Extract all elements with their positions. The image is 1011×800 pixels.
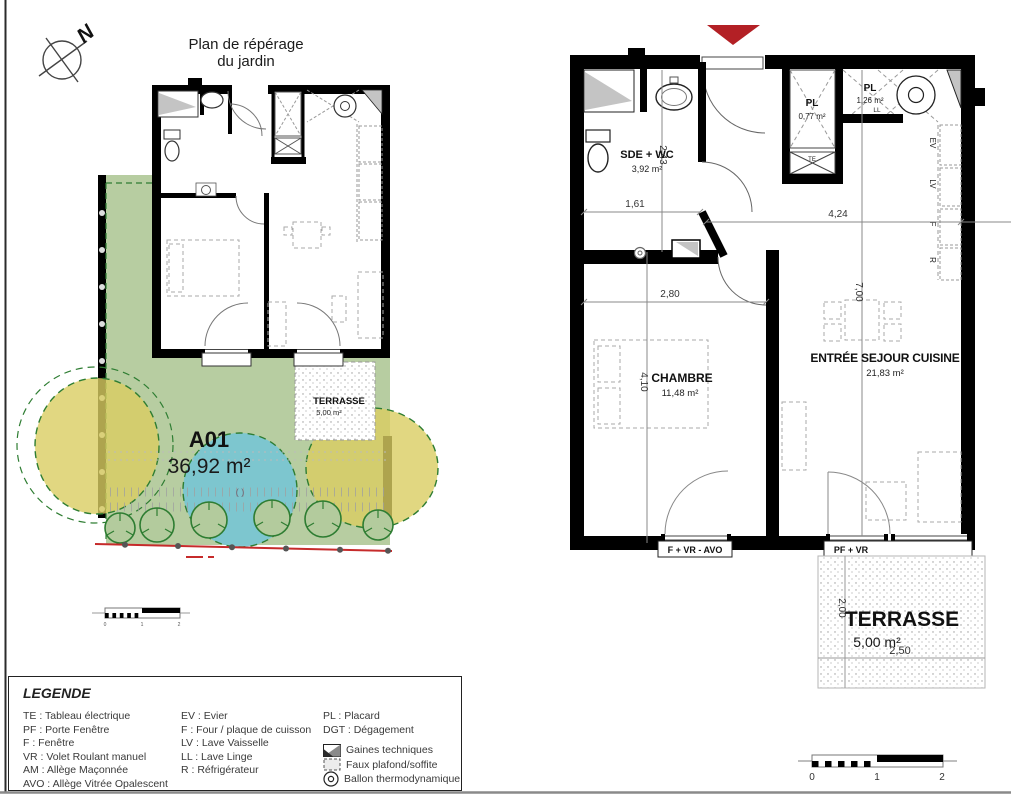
sejour-depth-dim: 7,00 — [853, 282, 864, 302]
site-plan: ( ) TERRASSE 5,00 m² — [17, 78, 438, 557]
chambre-depth-dim: 4,10 — [638, 372, 649, 392]
pl-small-label: PL — [806, 98, 819, 109]
gaines-techniques-swatch — [323, 744, 341, 757]
plan-title: Plan de répérage du jardin — [168, 36, 324, 70]
pl-large-area: 1,26 m² — [856, 96, 883, 105]
pl-small-area: 0,77 m² — [798, 112, 825, 121]
lv-tag: LV — [928, 179, 937, 189]
site-building — [156, 78, 386, 366]
plan-title-line1: Plan de répérage — [168, 36, 324, 53]
shrub-bed — [35, 378, 159, 514]
garden-center-mark: ( ) — [236, 487, 245, 497]
legend-symbol-label: Faux plafond/soffite — [346, 759, 437, 771]
legend-column-2: EV : Evier F : Four / plaque de cuisson … — [181, 710, 311, 778]
sde-room-label: SDE + WC — [620, 149, 674, 161]
site-terrace: TERRASSE 5,00 m² — [295, 362, 375, 440]
unit-label: A01 — [189, 427, 229, 452]
legend-item: LL : Lave Linge — [181, 751, 311, 765]
legend-item: AM : Allège Maçonnée — [23, 764, 168, 778]
sejour-room-label: ENTRÉE SEJOUR CUISINE — [810, 350, 959, 365]
legend-symbol-label: Gaines techniques — [346, 744, 433, 756]
site-terrace-label: TERRASSE — [313, 396, 365, 407]
legend-item: DGT : Dégagement — [323, 724, 460, 738]
chambre-room-area: 11,48 m² — [662, 388, 699, 399]
scale-bar-large: 0 1 2 — [798, 755, 957, 783]
legend-symbol-row: Gaines techniques — [323, 743, 460, 758]
ll-tag: LL — [873, 107, 881, 114]
pl-large-label: PL — [864, 83, 877, 94]
legend-title: LEGENDE — [23, 685, 91, 701]
north-letter: N — [72, 20, 99, 48]
legend-item: TE : Tableau électrique — [23, 710, 168, 724]
chambre-width-dim: 2,80 — [660, 289, 680, 300]
legend-item: VR : Volet Roulant manuel — [23, 751, 168, 765]
legend-box: LEGENDE TE : Tableau électrique PF : Por… — [8, 676, 462, 791]
svg-text:1: 1 — [874, 772, 880, 783]
ballon-thermodynamique-symbol — [897, 76, 935, 114]
te-tag: TE — [808, 157, 816, 163]
legend-item: PF : Porte Fenêtre — [23, 724, 168, 738]
chambre-window-label: F + VR - AVO — [668, 545, 723, 555]
floorplan-terrace: 2,00 2,50 TERRASSE 5,00 m² — [818, 556, 985, 688]
scale-bar-small: 0 1 2 — [92, 608, 190, 628]
legend-item: EV : Evier — [181, 710, 311, 724]
north-compass-icon: N — [39, 20, 99, 82]
legend-item: R : Réfrigérateur — [181, 764, 311, 778]
terrace-area: 5,00 m² — [853, 634, 901, 650]
sejour-room-area: 21,83 m² — [866, 368, 904, 379]
floor-plan: TE LL EV LV F R — [577, 25, 1011, 688]
sejour-window-label: PF + VR — [834, 545, 869, 555]
legend-item: LV : Lave Vaisselle — [181, 737, 311, 751]
chambre-room-label: CHAMBRE — [651, 371, 712, 385]
legend-column-3: PL : Placard DGT : Dégagement Gaines tec… — [323, 710, 460, 787]
closet-pl-small: TE — [782, 62, 843, 184]
ev-tag: EV — [928, 138, 937, 149]
unit-area: 36,92 m² — [168, 455, 251, 478]
legend-symbol-label: Ballon thermodynamique — [344, 773, 460, 785]
svg-text:2: 2 — [178, 622, 181, 628]
ballon-thermodynamique-symbol — [323, 771, 339, 787]
legend-item: PL : Placard — [323, 710, 460, 724]
legend-item: F : Four / plaque de cuisson — [181, 724, 311, 738]
svg-text:0: 0 — [809, 772, 815, 783]
legend-symbol-row: Faux plafond/soffite — [323, 758, 460, 773]
site-terrace-area: 5,00 m² — [316, 408, 342, 417]
sde-room-area: 3,92 m² — [632, 164, 663, 174]
svg-text:0: 0 — [104, 622, 107, 628]
svg-text:1: 1 — [141, 622, 144, 628]
r-tag: R — [928, 257, 937, 263]
faux-plafond-swatch — [323, 758, 341, 771]
legend-item: F : Fenêtre — [23, 737, 168, 751]
legend-column-1: TE : Tableau électrique PF : Porte Fenêt… — [23, 710, 168, 792]
sejour-width-dim: 4,24 — [828, 209, 848, 220]
sde-width-dim: 1,61 — [625, 199, 645, 210]
legend-item: AVO : Allège Vitrée Opalescent — [23, 778, 168, 792]
legend-symbol-row: Ballon thermodynamique — [323, 772, 460, 787]
entrance-arrow-icon — [707, 25, 760, 45]
terrace-label: TERRASSE — [845, 608, 959, 631]
svg-text:2: 2 — [939, 772, 945, 783]
plan-title-line2: du jardin — [168, 53, 324, 70]
